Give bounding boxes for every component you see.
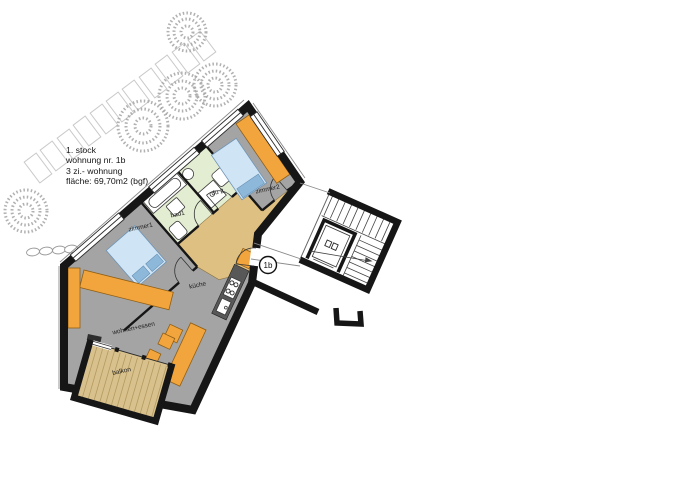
title-floor: 1. stock [66, 145, 148, 155]
floor-plan-drawing: 1b zimmer1 bad1 du 2 zimmer2 küche wohne… [0, 0, 700, 500]
wall-fragment [336, 308, 361, 324]
tree-icon [118, 101, 168, 151]
tree-icon [194, 64, 236, 106]
stairwell [298, 191, 398, 290]
title-area: fläche: 69,70m2 (bgf) [66, 176, 148, 186]
wardrobe-left-wall [68, 268, 80, 328]
title-block: 1. stock wohnung nr. 1b 3 zi.- wohnung f… [66, 145, 148, 187]
title-type: 3 zi.- wohnung [66, 166, 148, 176]
tree-icon [168, 13, 206, 51]
tree-icon [5, 190, 47, 232]
title-unit: wohnung nr. 1b [66, 155, 148, 165]
wall-extension [253, 282, 318, 312]
floor-plan-page: 1b zimmer1 bad1 du 2 zimmer2 küche wohne… [0, 0, 700, 500]
unit-badge: 1b [260, 257, 277, 274]
unit-badge-label: 1b [264, 261, 273, 270]
tree-icon [159, 73, 205, 119]
